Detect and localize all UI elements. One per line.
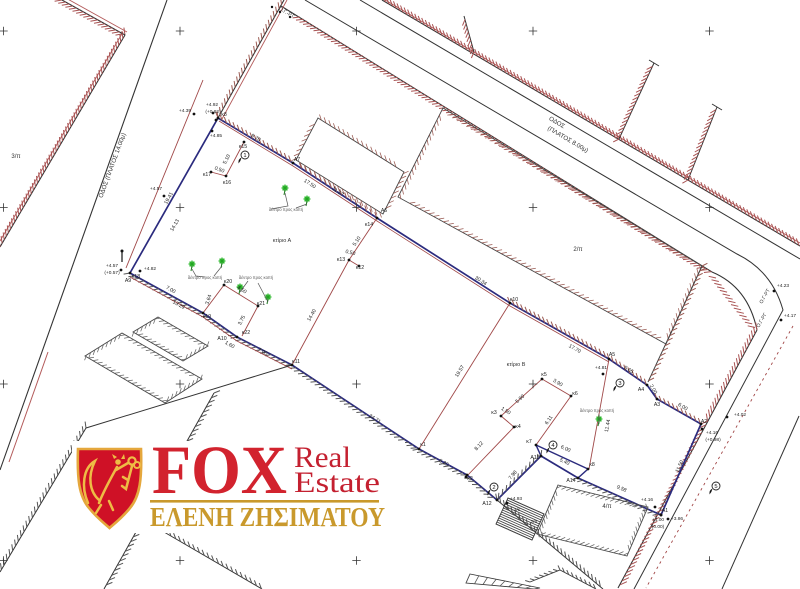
svg-text:ΕΛΕΝΗ ΖΗΣΙΜΑΤΟΥ: ΕΛΕΝΗ ΖΗΣΙΜΑΤΟΥ xyxy=(150,502,385,532)
svg-text:14.13: 14.13 xyxy=(169,218,181,232)
svg-text:κ6: κ6 xyxy=(572,391,578,397)
svg-text:(+0.57): (+0.57) xyxy=(104,270,120,276)
svg-text:Α5: Α5 xyxy=(609,352,615,358)
svg-text:δέντρο προς κοπή: δέντρο προς κοπή xyxy=(580,408,615,413)
svg-text:30.34: 30.34 xyxy=(473,275,487,287)
svg-text:κ16: κ16 xyxy=(223,180,231,186)
svg-text:Ο.Γ-ΡΤ: Ο.Γ-ΡΤ xyxy=(759,288,772,305)
svg-text:κ12: κ12 xyxy=(356,265,364,271)
svg-text:κ5: κ5 xyxy=(541,372,547,378)
svg-text:κ15: κ15 xyxy=(239,144,247,150)
svg-text:4.50: 4.50 xyxy=(236,285,248,295)
svg-text:+4.16: +4.16 xyxy=(706,430,718,436)
svg-text:κ21: κ21 xyxy=(257,301,265,307)
svg-text:(0.00): (0.00) xyxy=(652,524,665,530)
svg-text:FOX: FOX xyxy=(152,432,287,508)
svg-text:Α7: Α7 xyxy=(294,157,300,163)
svg-text:+4.93: +4.93 xyxy=(510,496,522,502)
svg-text:0.50: 0.50 xyxy=(345,249,356,257)
svg-text:Α2: Α2 xyxy=(701,419,707,425)
svg-text:3.64: 3.64 xyxy=(205,294,214,306)
svg-text:κ2: κ2 xyxy=(467,476,473,482)
svg-text:κ18: κ18 xyxy=(132,274,140,280)
svg-text:+4.02: +4.02 xyxy=(734,412,746,418)
svg-text:3.75: 3.75 xyxy=(237,315,247,327)
svg-text:+4.92: +4.92 xyxy=(206,102,218,108)
svg-text:Α1: Α1 xyxy=(662,508,668,514)
svg-text:+4.57: +4.57 xyxy=(106,263,118,269)
svg-text:+4.23: +4.23 xyxy=(777,283,789,289)
svg-text:2: 2 xyxy=(492,485,495,491)
svg-text:κ10: κ10 xyxy=(510,297,518,303)
svg-text:1.60: 1.60 xyxy=(224,340,236,350)
svg-text:δέντρο προς κοπή: δέντρο προς κοπή xyxy=(239,275,274,280)
svg-text:5.40: 5.40 xyxy=(559,457,571,467)
svg-text:8.12: 8.12 xyxy=(474,441,485,453)
svg-text:5.10: 5.10 xyxy=(222,154,232,166)
svg-text:3/π: 3/π xyxy=(11,154,20,160)
svg-text:2/π: 2/π xyxy=(531,519,538,524)
svg-text:δέντρο προς κοπή: δέντρο προς κοπή xyxy=(269,207,304,212)
svg-text:κ19: κ19 xyxy=(203,314,211,320)
svg-text:Α3: Α3 xyxy=(654,402,660,408)
svg-text:3: 3 xyxy=(618,381,621,387)
svg-text:(+0.98): (+0.98) xyxy=(705,437,721,443)
svg-text:1: 1 xyxy=(243,153,246,159)
svg-text:κ22: κ22 xyxy=(242,330,250,336)
svg-text:+4.16: +4.16 xyxy=(641,497,653,503)
svg-text:κ11: κ11 xyxy=(292,359,300,365)
svg-text:κ4: κ4 xyxy=(515,424,521,430)
svg-text:κτίριο Α: κτίριο Α xyxy=(273,238,292,244)
svg-text:+4.17: +4.17 xyxy=(784,313,796,319)
svg-text:11.44: 11.44 xyxy=(604,419,612,433)
svg-text:Α14: Α14 xyxy=(566,478,575,484)
svg-text:κ7: κ7 xyxy=(526,439,532,445)
svg-text:+4.39: +4.39 xyxy=(179,108,191,114)
svg-text:κ1: κ1 xyxy=(420,442,426,448)
svg-text:κ8: κ8 xyxy=(221,112,227,118)
svg-text:5: 5 xyxy=(714,484,717,490)
svg-text:6.00: 6.00 xyxy=(560,444,572,454)
svg-text:Α9: Α9 xyxy=(125,278,131,284)
svg-text:+4.82: +4.82 xyxy=(144,266,156,272)
svg-text:(ΠΛΑΤΟΣ 8.00μ): (ΠΛΑΤΟΣ 8.00μ) xyxy=(546,125,589,154)
svg-text:Α13: Α13 xyxy=(530,455,539,461)
svg-text:9.58: 9.58 xyxy=(616,484,628,494)
svg-text:ΟΔΟΣ (ΠΛΑΤΟΣ 14.00μ): ΟΔΟΣ (ΠΛΑΤΟΣ 14.00μ) xyxy=(98,132,128,199)
svg-text:Α12: Α12 xyxy=(482,501,491,507)
svg-text:+4.57: +4.57 xyxy=(150,186,162,192)
svg-text:13.29: 13.29 xyxy=(171,299,185,311)
svg-text:κ8: κ8 xyxy=(589,462,595,468)
svg-text:Ο.Γ-ΡΓ: Ο.Γ-ΡΓ xyxy=(756,312,769,329)
svg-text:κτίριο Β: κτίριο Β xyxy=(507,362,526,368)
svg-text:Estate: Estate xyxy=(294,466,380,499)
svg-text:6.11: 6.11 xyxy=(544,415,555,426)
svg-text:3.90: 3.90 xyxy=(552,378,564,388)
svg-text:δέντρο προς κοπή: δέντρο προς κοπή xyxy=(188,275,223,280)
svg-text:κ14: κ14 xyxy=(365,222,373,228)
svg-text:+4.85: +4.85 xyxy=(210,133,222,139)
svg-text:+4.00: +4.00 xyxy=(652,517,664,523)
svg-text:Α6: Α6 xyxy=(381,208,387,214)
svg-text:Α4: Α4 xyxy=(638,387,644,393)
svg-text:κ17: κ17 xyxy=(203,172,211,178)
svg-text:1/κ: 1/κ xyxy=(514,507,521,512)
svg-text:κ13: κ13 xyxy=(337,257,345,263)
svg-text:2/π: 2/π xyxy=(573,247,582,253)
svg-text:(+0.82): (+0.82) xyxy=(205,109,221,115)
svg-text:+4.81: +4.81 xyxy=(595,365,607,371)
svg-text:κ3: κ3 xyxy=(491,410,497,416)
svg-text:κ20: κ20 xyxy=(224,279,232,285)
svg-text:+3.86: +3.86 xyxy=(671,516,683,522)
svg-text:4/π: 4/π xyxy=(602,504,611,510)
